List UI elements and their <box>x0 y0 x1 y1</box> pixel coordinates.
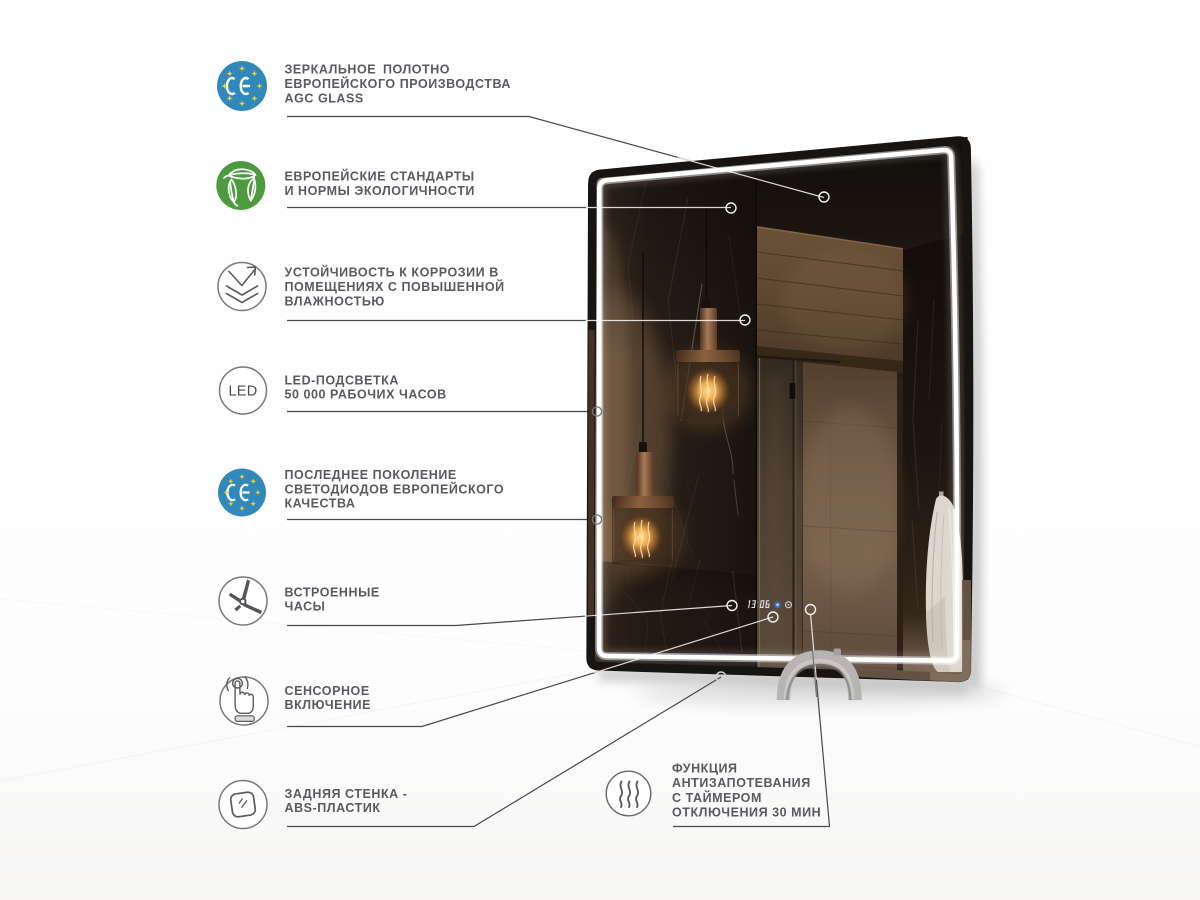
svg-text:СВЕТОДИОДОВ ЕВРОПЕЙСКОГО: СВЕТОДИОДОВ ЕВРОПЕЙСКОГО <box>285 481 505 496</box>
svg-text:ЗАДНЯЯ СТЕНКА -: ЗАДНЯЯ СТЕНКА - <box>285 787 408 801</box>
svg-text:LED-ПОДСВЕТКА: LED-ПОДСВЕТКА <box>285 374 399 388</box>
svg-text:ПОМЕЩЕНИЯХ С ПОВЫШЕННОЙ: ПОМЕЩЕНИЯХ С ПОВЫШЕННОЙ <box>285 279 505 294</box>
svg-text:СЕНСОРНОЕ: СЕНСОРНОЕ <box>285 684 370 698</box>
svg-text:ABS-ПЛАСТИК: ABS-ПЛАСТИК <box>285 801 381 815</box>
svg-text:УСТОЙЧИВОСТЬ К КОРРОЗИИ В: УСТОЙЧИВОСТЬ К КОРРОЗИИ В <box>285 265 499 280</box>
svg-text:ВЛАЖНОСТЬЮ: ВЛАЖНОСТЬЮ <box>285 294 385 308</box>
svg-text:КАЧЕСТВА: КАЧЕСТВА <box>285 496 356 510</box>
svg-text:С ТАЙМЕРОМ: С ТАЙМЕРОМ <box>672 790 762 805</box>
svg-text:AGC GLASS: AGC GLASS <box>285 91 364 105</box>
svg-text:ОТКЛЮЧЕНИЯ 30 МИН: ОТКЛЮЧЕНИЯ 30 МИН <box>672 806 821 820</box>
svg-text:ВСТРОЕННЫЕ: ВСТРОЕННЫЕ <box>285 586 380 600</box>
svg-text:АНТИЗАПОТЕВАНИЯ: АНТИЗАПОТЕВАНИЯ <box>672 776 811 790</box>
svg-text:ПОСЛЕДНЕЕ ПОКОЛЕНИЕ: ПОСЛЕДНЕЕ ПОКОЛЕНИЕ <box>285 468 457 482</box>
svg-text:ЧАСЫ: ЧАСЫ <box>285 600 326 614</box>
svg-text:LED: LED <box>228 384 257 400</box>
svg-text:50 000 РАБОЧИХ ЧАСОВ: 50 000 РАБОЧИХ ЧАСОВ <box>285 388 447 402</box>
svg-text:ФУНКЦИЯ: ФУНКЦИЯ <box>672 761 738 775</box>
svg-text:ЗЕРКАЛЬНОЕ ПОЛОТНО: ЗЕРКАЛЬНОЕ ПОЛОТНО <box>285 62 451 76</box>
svg-text:ЕВРОПЕЙСКОГО ПРОИЗВОДСТВА: ЕВРОПЕЙСКОГО ПРОИЗВОДСТВА <box>285 76 511 91</box>
svg-text:И НОРМЫ ЭКОЛОГИЧНОСТИ: И НОРМЫ ЭКОЛОГИЧНОСТИ <box>285 184 475 198</box>
svg-text:ВКЛЮЧЕНИЕ: ВКЛЮЧЕНИЕ <box>285 698 372 712</box>
svg-text:ЕВРОПЕЙСКИЕ СТАНДАРТЫ: ЕВРОПЕЙСКИЕ СТАНДАРТЫ <box>285 169 475 184</box>
